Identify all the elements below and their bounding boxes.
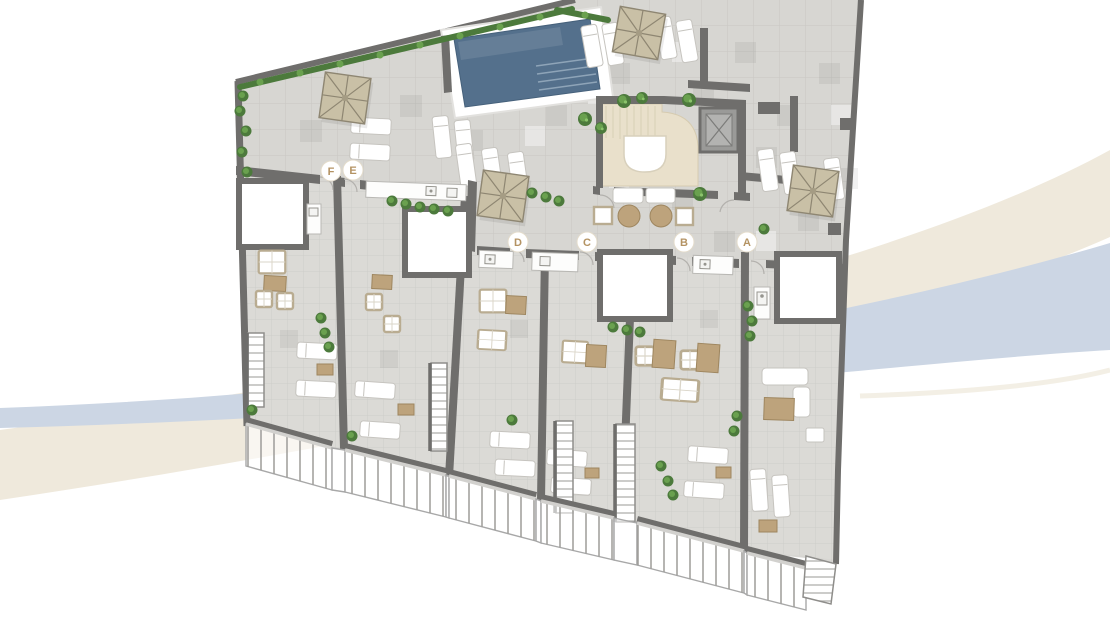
tree bbox=[693, 187, 707, 201]
wall-stub bbox=[840, 118, 854, 130]
side-table-tan bbox=[585, 468, 599, 478]
corner-staircase bbox=[803, 556, 836, 604]
railing-return bbox=[614, 518, 637, 565]
sun-lounger bbox=[354, 381, 395, 400]
sun-lounger bbox=[772, 474, 791, 517]
bush bbox=[747, 316, 758, 327]
bush bbox=[241, 126, 252, 137]
side-table bbox=[806, 428, 824, 442]
sofa bbox=[762, 368, 808, 385]
elevator bbox=[700, 108, 738, 152]
coffee-table-tan bbox=[764, 397, 795, 420]
unit-marker-letter: F bbox=[328, 166, 335, 178]
bush bbox=[235, 106, 246, 117]
bush bbox=[237, 147, 248, 158]
tree bbox=[682, 93, 696, 107]
side-table-tan bbox=[317, 364, 333, 375]
chair bbox=[384, 316, 400, 332]
sofa bbox=[646, 188, 675, 203]
side-table bbox=[594, 207, 612, 224]
kitchen-counter bbox=[479, 250, 514, 268]
skylight bbox=[777, 254, 839, 321]
bush bbox=[507, 415, 518, 426]
bush bbox=[316, 313, 327, 324]
skylight bbox=[405, 209, 469, 275]
bush bbox=[729, 426, 740, 437]
bush bbox=[387, 196, 398, 207]
core-bottom-wall bbox=[734, 192, 750, 201]
bush bbox=[429, 204, 440, 215]
sun-lounger bbox=[296, 380, 337, 398]
bush bbox=[668, 490, 679, 501]
parasol bbox=[612, 6, 669, 64]
parasol bbox=[318, 72, 373, 128]
tan-seat bbox=[585, 344, 606, 367]
bush bbox=[443, 206, 454, 217]
dining-table bbox=[661, 378, 699, 402]
dining-table bbox=[562, 341, 588, 364]
bush bbox=[247, 405, 258, 416]
parasol bbox=[476, 170, 531, 226]
tan-seat bbox=[264, 275, 287, 291]
wall-stub bbox=[790, 96, 798, 152]
unit-marker-letter: B bbox=[680, 237, 688, 249]
skylight bbox=[239, 181, 306, 247]
side-table bbox=[676, 208, 693, 225]
floor-plan-illustration: FEDCBA bbox=[0, 0, 1110, 623]
sun-lounger bbox=[750, 468, 769, 511]
floor-plan-page: FEDCBA bbox=[0, 0, 1110, 623]
tree bbox=[617, 94, 631, 108]
tan-seat bbox=[372, 274, 393, 289]
round-ottoman bbox=[650, 205, 672, 227]
kitchen-counter bbox=[366, 181, 466, 200]
dining-table bbox=[480, 290, 507, 313]
staircase bbox=[616, 424, 635, 522]
bush bbox=[320, 328, 331, 339]
wall-stub bbox=[758, 102, 780, 114]
bush bbox=[635, 327, 646, 338]
staircase bbox=[431, 363, 447, 451]
bush bbox=[401, 199, 412, 210]
side-table-tan bbox=[398, 404, 414, 415]
bush bbox=[238, 91, 249, 102]
kitchen-counter bbox=[754, 287, 770, 319]
wall-stub bbox=[828, 223, 841, 235]
bush bbox=[622, 325, 633, 336]
sun-lounger bbox=[495, 459, 536, 477]
bush bbox=[656, 461, 667, 472]
round-ottoman bbox=[618, 205, 640, 227]
bush bbox=[745, 331, 756, 342]
sun-lounger bbox=[687, 446, 728, 465]
chair bbox=[636, 347, 654, 365]
staircase bbox=[248, 333, 264, 407]
tree bbox=[578, 112, 592, 126]
kitchen-counter bbox=[693, 255, 734, 274]
bush bbox=[324, 342, 335, 353]
tan-seat bbox=[652, 339, 676, 368]
unit-marker-letter: A bbox=[743, 237, 751, 249]
unit-marker-d[interactable]: D bbox=[508, 232, 528, 252]
unit-marker-c[interactable]: C bbox=[577, 232, 597, 252]
chair bbox=[277, 293, 293, 309]
dining-table bbox=[478, 330, 507, 351]
unit-marker-letter: C bbox=[583, 237, 591, 249]
core-rounded-feature bbox=[624, 136, 666, 172]
swoosh-thin-line bbox=[860, 370, 1110, 396]
chair bbox=[256, 291, 272, 307]
tree bbox=[636, 92, 648, 104]
sun-lounger bbox=[683, 481, 724, 500]
sun-lounger bbox=[490, 431, 531, 449]
unit-marker-b[interactable]: B bbox=[674, 232, 694, 252]
bush bbox=[242, 167, 253, 178]
bush bbox=[554, 196, 565, 207]
bush bbox=[347, 431, 358, 442]
unit-marker-f[interactable]: F bbox=[321, 161, 341, 181]
chair bbox=[366, 294, 382, 310]
unit-marker-a[interactable]: A bbox=[737, 232, 757, 252]
sofa bbox=[613, 188, 643, 203]
sofa bbox=[793, 387, 810, 417]
core-left-wall bbox=[596, 96, 603, 188]
bush bbox=[608, 322, 619, 333]
tree bbox=[595, 122, 607, 134]
bush bbox=[541, 192, 552, 203]
bush bbox=[743, 301, 754, 312]
bush bbox=[759, 224, 770, 235]
side-table-tan bbox=[716, 467, 731, 478]
railing-return bbox=[536, 499, 541, 543]
sun-lounger bbox=[350, 143, 391, 161]
bush bbox=[415, 202, 426, 213]
bush bbox=[663, 476, 674, 487]
unit-marker-e[interactable]: E bbox=[343, 160, 363, 180]
tan-seat bbox=[506, 295, 527, 314]
wall-stub bbox=[700, 28, 708, 88]
side-table-tan bbox=[759, 520, 777, 532]
skylight bbox=[600, 252, 670, 319]
appliance-icon bbox=[309, 208, 318, 216]
unit-marker-letter: D bbox=[514, 237, 522, 249]
sun-lounger bbox=[359, 421, 400, 440]
parasol bbox=[786, 165, 841, 221]
dining-table bbox=[259, 251, 286, 274]
unit-marker-letter: E bbox=[349, 165, 356, 177]
kitchen-counter bbox=[532, 252, 579, 272]
core-bottom-wall bbox=[593, 186, 600, 195]
party-wall-b-a bbox=[740, 252, 749, 552]
tan-seat bbox=[696, 343, 720, 372]
bush bbox=[527, 188, 538, 199]
bush bbox=[732, 411, 743, 422]
railing-return bbox=[332, 448, 345, 492]
